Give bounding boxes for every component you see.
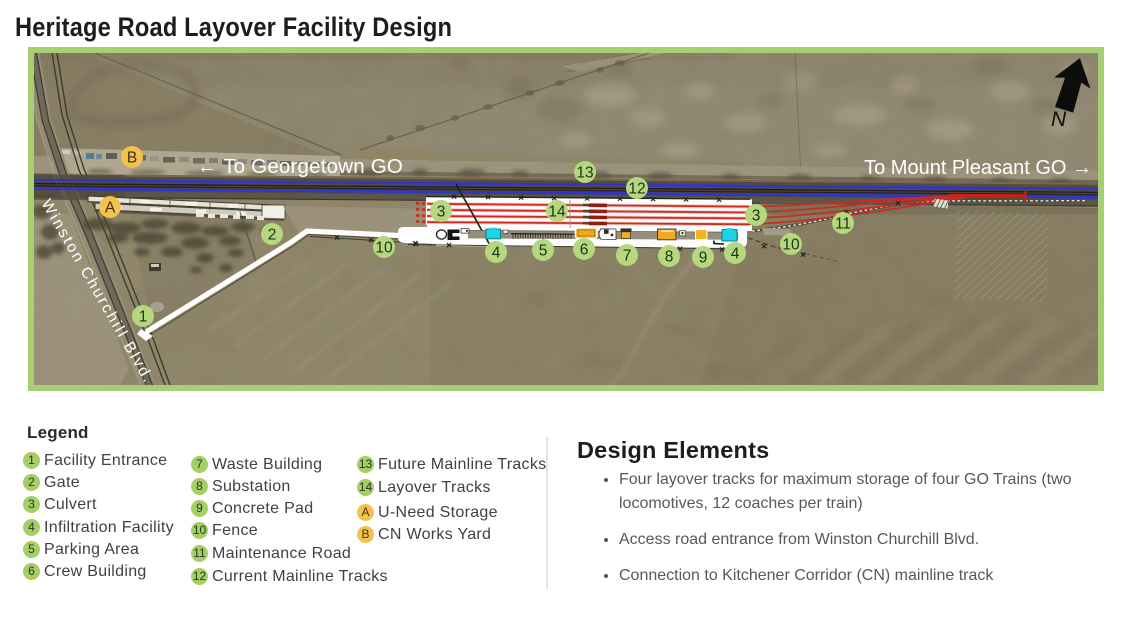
- svg-text:2: 2: [268, 227, 277, 244]
- svg-text:3: 3: [437, 204, 446, 221]
- svg-text:10: 10: [375, 240, 393, 257]
- svg-text:4: 4: [492, 245, 501, 262]
- svg-text:1: 1: [139, 309, 148, 326]
- svg-text:5: 5: [539, 243, 548, 260]
- svg-text:A: A: [105, 200, 116, 217]
- svg-text:B: B: [127, 150, 137, 167]
- svg-text:12: 12: [628, 181, 645, 198]
- svg-text:N: N: [1051, 108, 1067, 131]
- svg-text:13: 13: [576, 165, 593, 182]
- svg-text:10: 10: [782, 237, 800, 254]
- svg-text:7: 7: [623, 248, 632, 265]
- svg-text:To Mount Pleasant GO →: To Mount Pleasant GO →: [864, 157, 1092, 179]
- svg-text:11: 11: [835, 216, 851, 233]
- svg-text:3: 3: [752, 208, 761, 225]
- svg-text:4: 4: [731, 246, 740, 263]
- svg-text:6: 6: [580, 242, 589, 259]
- svg-text:14: 14: [548, 204, 566, 221]
- svg-text:9: 9: [699, 250, 708, 267]
- svg-text:← To Georgetown GO: ← To Georgetown GO: [197, 155, 403, 178]
- svg-text:8: 8: [665, 249, 674, 266]
